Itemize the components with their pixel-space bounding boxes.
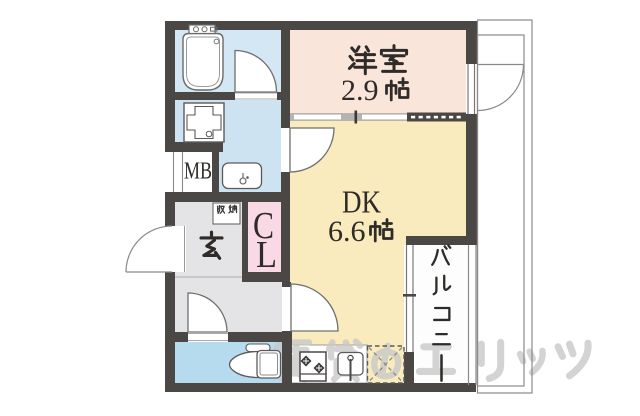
svg-text:L: L (256, 234, 277, 276)
svg-text:6.6: 6.6 (328, 215, 366, 248)
svg-text:2.9: 2.9 (341, 74, 379, 107)
svg-text:MB: MB (184, 159, 212, 185)
